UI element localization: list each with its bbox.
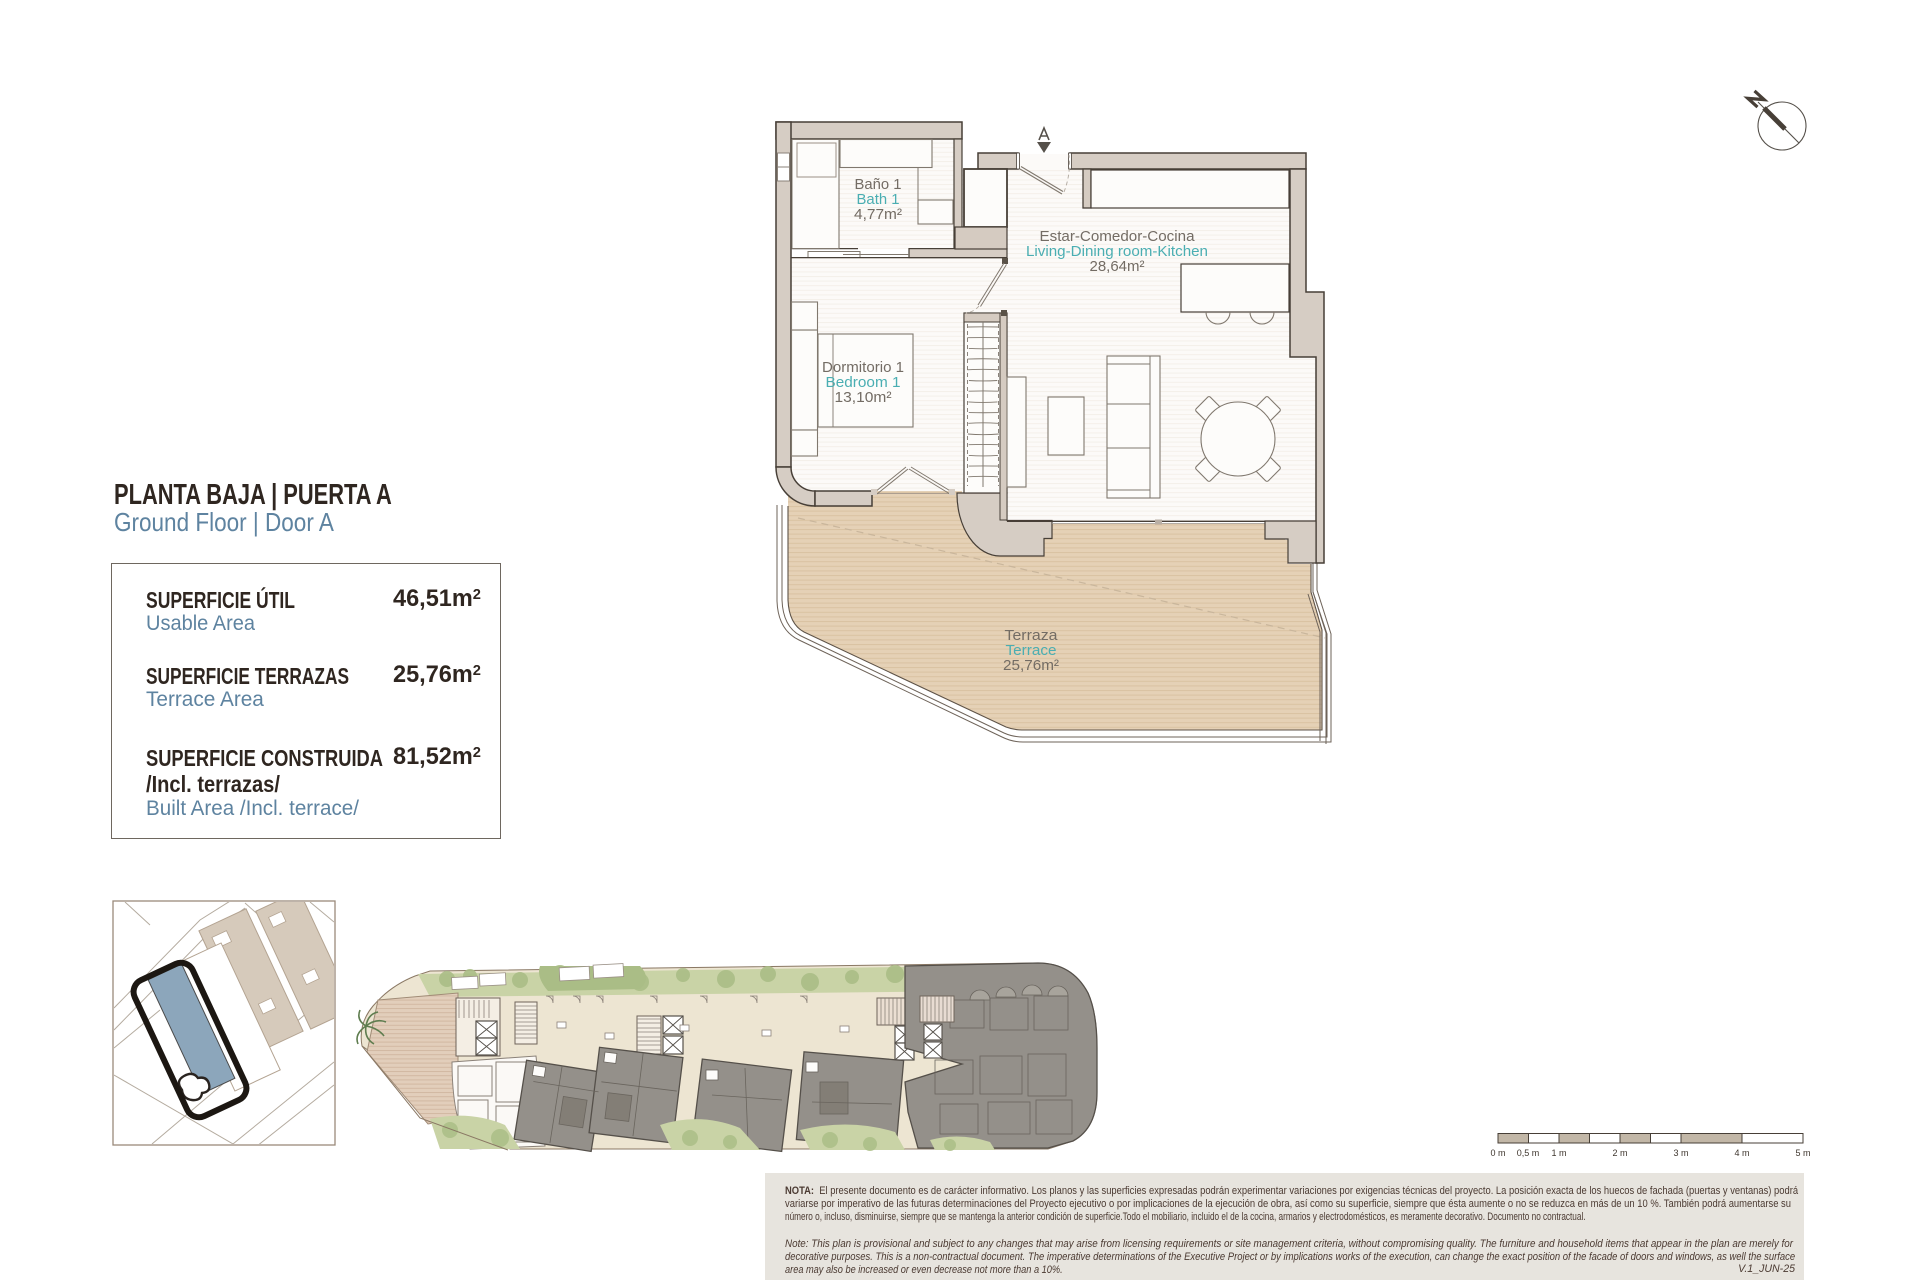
svg-text:13,10m²: 13,10m²	[835, 389, 892, 406]
svg-text:1 m: 1 m	[1551, 1148, 1566, 1158]
svg-text:3 m: 3 m	[1673, 1148, 1688, 1158]
svg-text:4 m: 4 m	[1734, 1148, 1749, 1158]
svg-text:2 m: 2 m	[1612, 1148, 1627, 1158]
svg-text:5 m: 5 m	[1795, 1148, 1810, 1158]
svg-text:28,64m²: 28,64m²	[1090, 258, 1145, 275]
svg-text:4,77m²: 4,77m²	[854, 206, 902, 223]
svg-text:0 m: 0 m	[1490, 1148, 1505, 1158]
svg-text:25,76m²: 25,76m²	[1003, 657, 1059, 674]
svg-text:0,5 m: 0,5 m	[1517, 1148, 1540, 1158]
